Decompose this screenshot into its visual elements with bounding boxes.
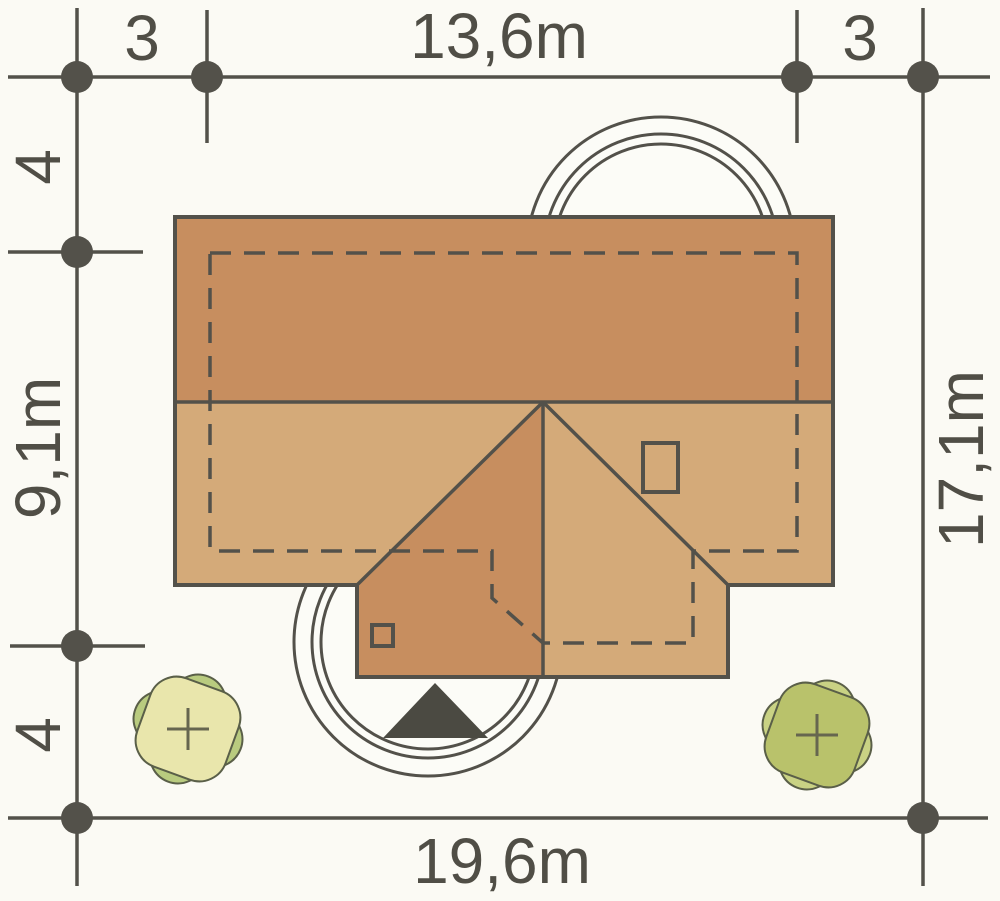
chimney-gable (372, 625, 393, 646)
dim-top-width: 13,6m (410, 0, 588, 72)
tree-left (125, 666, 252, 793)
site-plan-canvas: 3 13,6m 3 4 9,1m 4 17,1m 19,6m (0, 0, 1000, 901)
house-roof (175, 217, 833, 677)
dim-right-height: 17,1m (925, 370, 997, 548)
dim-bottom-width: 19,6m (413, 825, 591, 897)
dim-left-height: 9,1m (2, 377, 74, 519)
dim-top-right-offset: 3 (842, 2, 878, 74)
tree-right (754, 672, 881, 799)
site-plan-drawing: 3 13,6m 3 4 9,1m 4 17,1m 19,6m (0, 0, 1000, 901)
dot-top-inner-left (191, 61, 223, 93)
dim-left-bottom-offset: 4 (2, 717, 74, 753)
dim-top-left-offset: 3 (124, 2, 160, 74)
dot-top-right (907, 61, 939, 93)
dot-left-lower (61, 630, 93, 662)
chimney-main (643, 443, 678, 492)
dot-top-left (61, 61, 93, 93)
dot-bottom-right (907, 802, 939, 834)
dim-left-top-offset: 4 (2, 149, 74, 185)
roof-plane-rear (175, 217, 833, 402)
dot-top-inner-right (781, 61, 813, 93)
dot-bottom-left (61, 802, 93, 834)
dot-left-upper (61, 236, 93, 268)
